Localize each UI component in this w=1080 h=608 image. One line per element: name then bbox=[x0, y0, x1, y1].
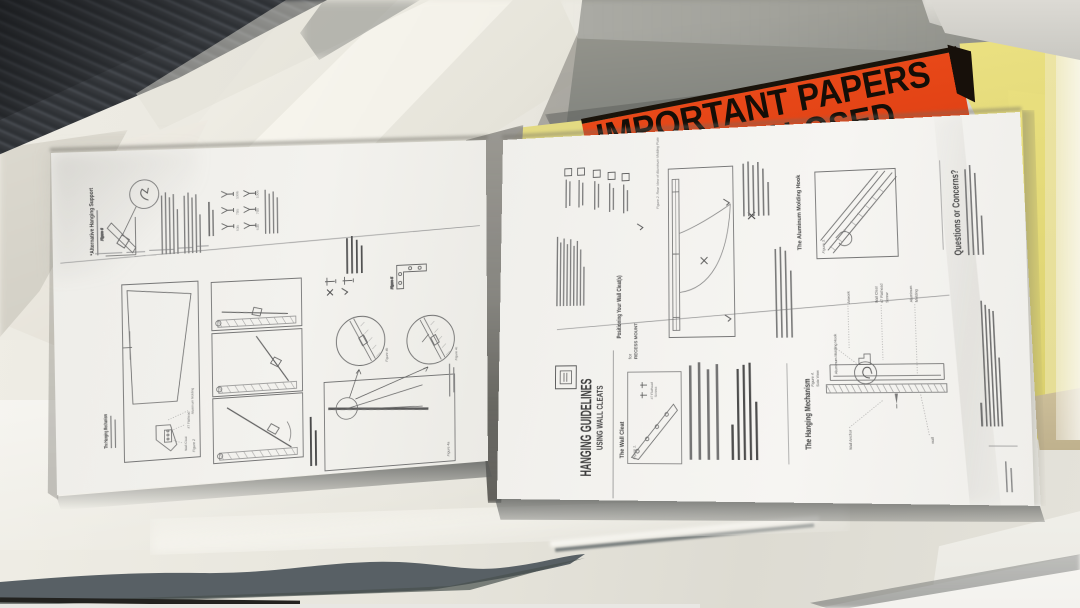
svg-text:Molding: Molding bbox=[914, 289, 919, 302]
svg-text:The Hanging Mechanism: The Hanging Mechanism bbox=[103, 414, 109, 449]
svg-text:*Alternative Hanging Support: *Alternative Hanging Support bbox=[89, 188, 96, 256]
svg-text:wall: wall bbox=[930, 437, 935, 444]
svg-text:Artwork: Artwork bbox=[846, 291, 851, 304]
svg-text:Aluminum Molding Hook: Aluminum Molding Hook bbox=[833, 333, 839, 374]
svg-text:The Hanging Mechanism: The Hanging Mechanism bbox=[804, 379, 814, 450]
svg-text:Figure 4b: Figure 4b bbox=[385, 348, 389, 362]
svg-text:Figure 6: Figure 6 bbox=[100, 228, 104, 241]
svg-text:Aluminum Molding: Aluminum Molding bbox=[190, 388, 194, 415]
svg-text:for: for bbox=[628, 353, 632, 359]
svg-text:Positioning Your Wall Cleat(s): Positioning Your Wall Cleat(s) bbox=[617, 275, 624, 338]
svg-text:Figure 2: Figure 2 bbox=[192, 438, 196, 452]
svg-text:Screws: Screws bbox=[653, 386, 658, 397]
svg-text:Wall Anchor: Wall Anchor bbox=[848, 430, 853, 450]
svg-text:Figure 4c: Figure 4c bbox=[455, 346, 459, 360]
svg-text:Questions or Concerns?: Questions or Concerns? bbox=[949, 169, 964, 255]
svg-text:HANGING GUIDELINES: HANGING GUIDELINES bbox=[578, 379, 595, 477]
svg-text:75lb: 75lb bbox=[236, 209, 240, 215]
svg-text:Screw: Screw bbox=[884, 292, 889, 303]
svg-text:USING WALL CLEATS: USING WALL CLEATS bbox=[595, 385, 605, 450]
svg-text:75lb: 75lb bbox=[256, 208, 260, 214]
svg-text:100lb: 100lb bbox=[235, 191, 239, 199]
svg-text:Figure 5: Figure 5 bbox=[390, 277, 394, 289]
svg-text:50lb: 50lb bbox=[236, 225, 240, 231]
svg-text:Figure 2. Rear View of Aluminu: Figure 2. Rear View of Aluminum Molding … bbox=[655, 137, 660, 209]
svg-text:#7 Flathead: #7 Flathead bbox=[649, 382, 654, 400]
svg-text:RECESS MOUNT: RECESS MOUNT bbox=[634, 322, 639, 359]
svg-text:Wall Cleat: Wall Cleat bbox=[184, 436, 188, 451]
svg-text:50lb: 50lb bbox=[256, 224, 260, 230]
svg-text:The Aluminum Molding Hook: The Aluminum Molding Hook bbox=[795, 174, 804, 250]
svg-text:100lb: 100lb bbox=[256, 190, 260, 198]
svg-text:Figure 4a: Figure 4a bbox=[447, 442, 451, 457]
svg-text:Figure 3.: Figure 3. bbox=[821, 239, 826, 254]
svg-text:Side View: Side View bbox=[815, 369, 820, 386]
svg-text:The Wall Cleat: The Wall Cleat bbox=[619, 421, 626, 458]
